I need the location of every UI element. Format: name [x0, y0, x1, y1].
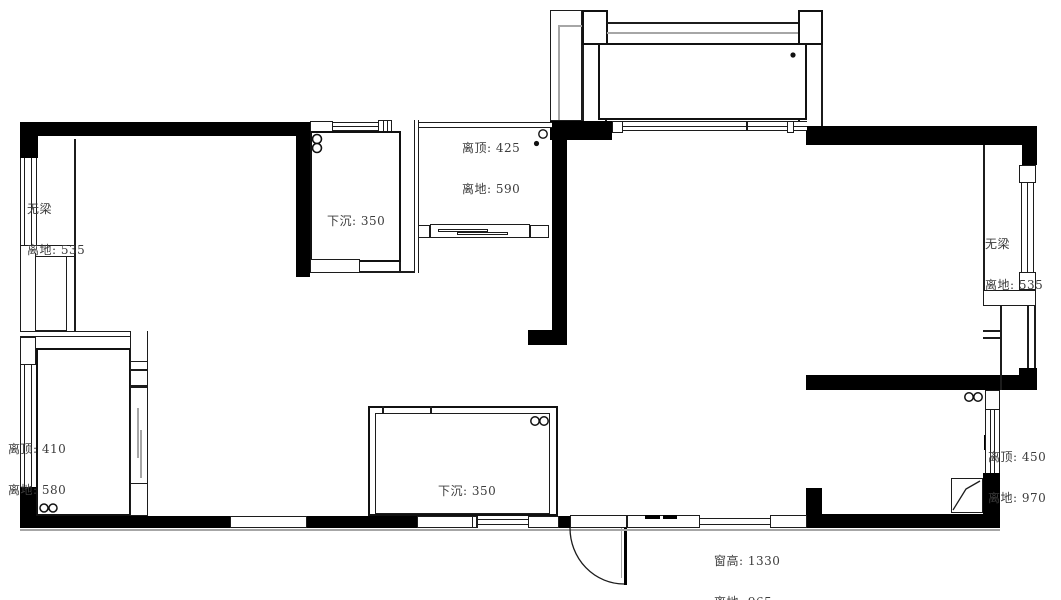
- wall-bottom-door-jamb: [559, 516, 570, 528]
- balcony-railing-gray-line: [607, 32, 798, 34]
- label-line: 离地: 590: [462, 183, 520, 197]
- wall-top-center: [550, 121, 612, 140]
- label-right-mid: 离顶: 450 离地: 970: [988, 424, 1046, 532]
- bottom-sill-mark: [663, 515, 677, 519]
- pocket-door-leaf: [140, 430, 142, 478]
- wall-bottom-right: [806, 514, 1000, 528]
- label-right-beam: 无梁 离地: 535: [985, 211, 1043, 319]
- wall-bottom-middle: [307, 516, 417, 528]
- hall-pass-right-jamb: [530, 225, 549, 238]
- channel-bottom-box: [130, 483, 148, 516]
- flue-symbol: [951, 478, 983, 513]
- hall-left-wall: [414, 120, 419, 273]
- balcony-duct-gray-line: [558, 25, 582, 27]
- entry-door-opening: [570, 515, 627, 528]
- label-hall: 离顶: 425 离地: 590: [462, 115, 520, 223]
- window-top-main-jamb: [612, 121, 623, 133]
- wall-right-corner: [1022, 145, 1037, 165]
- label-line: 离地: 580: [8, 484, 66, 498]
- label-line: 无梁: [985, 238, 1043, 252]
- window-pane-line: [333, 126, 378, 127]
- sunken-room-bottom-line: [360, 271, 419, 273]
- label-line: 下沉: 350: [327, 215, 385, 229]
- label-line: 离地: 535: [985, 279, 1043, 293]
- label-left-mid: 离顶: 410 离地: 580: [8, 416, 66, 524]
- balcony-duct: [550, 10, 582, 121]
- double-circle-symbol: [974, 393, 982, 401]
- wall-hall-right: [552, 122, 567, 345]
- pocket-door-leaf: [137, 408, 139, 458]
- window-bottom: [700, 518, 770, 525]
- balcony-column-left: [582, 10, 608, 45]
- balcony-inner-outline: [598, 43, 807, 120]
- window-pane-line: [612, 126, 807, 127]
- label-line: 离地: 535: [27, 244, 85, 258]
- entry-door-leaf: [624, 528, 627, 585]
- window-sill-right-upper: [1019, 165, 1036, 183]
- hall-pass-left-jamb: [418, 225, 430, 238]
- label-line: 离顶: 425: [462, 142, 520, 156]
- balcony-column-side: [582, 45, 584, 121]
- wall-hall-stub: [528, 330, 554, 345]
- door-swing-arc: [570, 528, 624, 584]
- bottom-shadow-line: [20, 529, 1000, 531]
- dot-symbol: [534, 141, 539, 146]
- wall-band-left-interior: [20, 331, 148, 337]
- wall-right-main: [806, 375, 1037, 390]
- right-shelf-line: [983, 337, 1000, 339]
- label-line: 下沉: 350: [438, 485, 496, 499]
- balcony-duct-gray-line: [558, 26, 560, 120]
- window-pane-line: [24, 158, 25, 246]
- label-line: 离地: 970: [988, 492, 1046, 506]
- label-line: 离顶: 450: [988, 451, 1046, 465]
- sliding-panel: [457, 232, 508, 235]
- label-sunken-bottom: 下沉: 350: [438, 458, 496, 526]
- label-sunken-top: 下沉: 350: [327, 188, 385, 256]
- window-top-main-divider: [746, 121, 748, 131]
- sunken-room-top-tick: [430, 406, 432, 414]
- sunken-room-top-sill: [310, 259, 360, 273]
- label-line: 离地: 965: [714, 596, 780, 600]
- bottom-sill-mark: [645, 515, 660, 519]
- circle-symbol: [539, 130, 547, 138]
- entry-door-leaf-shadow: [621, 528, 622, 578]
- double-circle-symbol: [965, 393, 973, 401]
- balcony-railing-line: [607, 22, 798, 24]
- floor-plan-canvas: 无梁 离地: 535 离顶: 425 离地: 590 下沉: 350 无梁 离地…: [0, 0, 1061, 600]
- wall-top-left: [20, 122, 310, 136]
- kitchen-wall-box: [985, 390, 1000, 410]
- wall-left-small-box: [20, 337, 36, 365]
- right-shelf-line: [983, 330, 1000, 332]
- wall-sunken-room-left: [296, 136, 310, 277]
- window-top-main-divider-box: [787, 121, 794, 133]
- balcony-column-right: [798, 10, 823, 45]
- label-bottom-window: 窗高: 1330 离地: 965: [714, 528, 780, 600]
- label-top-left-beam: 无梁 离地: 535: [27, 176, 85, 284]
- label-line: 离顶: 410: [8, 443, 66, 457]
- bottom-left-opening: [230, 516, 307, 528]
- window-top-main: [612, 121, 807, 131]
- window-top-band: [333, 122, 378, 131]
- channel-track-box: [130, 361, 148, 370]
- label-line: 无梁: [27, 203, 85, 217]
- balcony-column-side: [821, 45, 823, 126]
- wall-top-right: [806, 126, 1037, 145]
- sunken-bottom-sill-b: [528, 516, 559, 528]
- wall-left-top-column: [20, 122, 38, 158]
- label-line: 窗高: 1330: [714, 555, 780, 569]
- sunken-room-top-tick: [382, 406, 384, 414]
- bottom-sill-b: [770, 515, 807, 528]
- channel-thick-line: [130, 385, 148, 388]
